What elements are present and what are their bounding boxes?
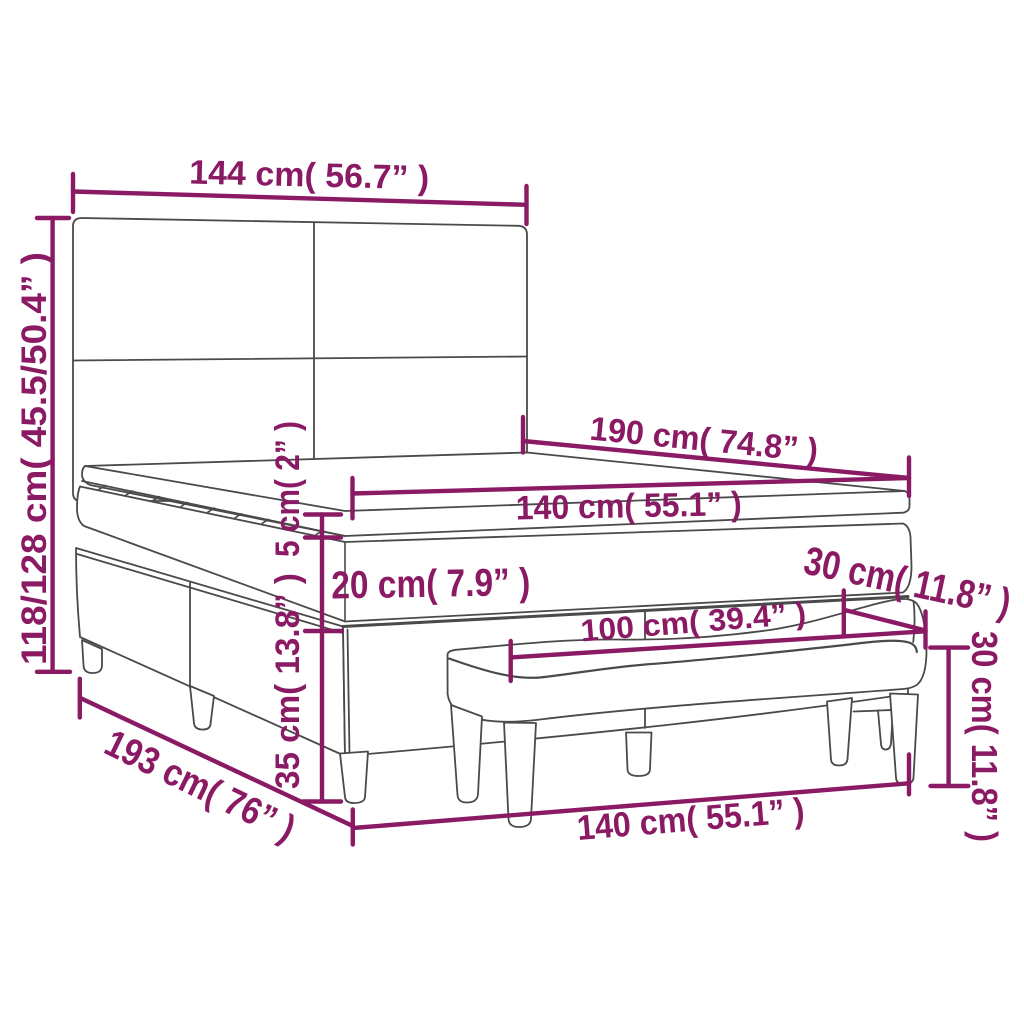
svg-text:118/128 cm( 45.5/50.4” ): 118/128 cm( 45.5/50.4” ) <box>15 252 54 665</box>
svg-text:35 cm( 13.8” ): 35 cm( 13.8” ) <box>269 573 307 789</box>
svg-text:30 cm( 11.8” ): 30 cm( 11.8” ) <box>964 631 1005 842</box>
svg-text:5 cm( 2” ): 5 cm( 2” ) <box>269 421 307 557</box>
svg-text:144 cm( 56.7” ): 144 cm( 56.7” ) <box>189 154 430 198</box>
svg-text:20 cm( 7.9” ): 20 cm( 7.9” ) <box>331 561 531 607</box>
svg-text:140 cm( 55.1” ): 140 cm( 55.1” ) <box>515 485 742 527</box>
